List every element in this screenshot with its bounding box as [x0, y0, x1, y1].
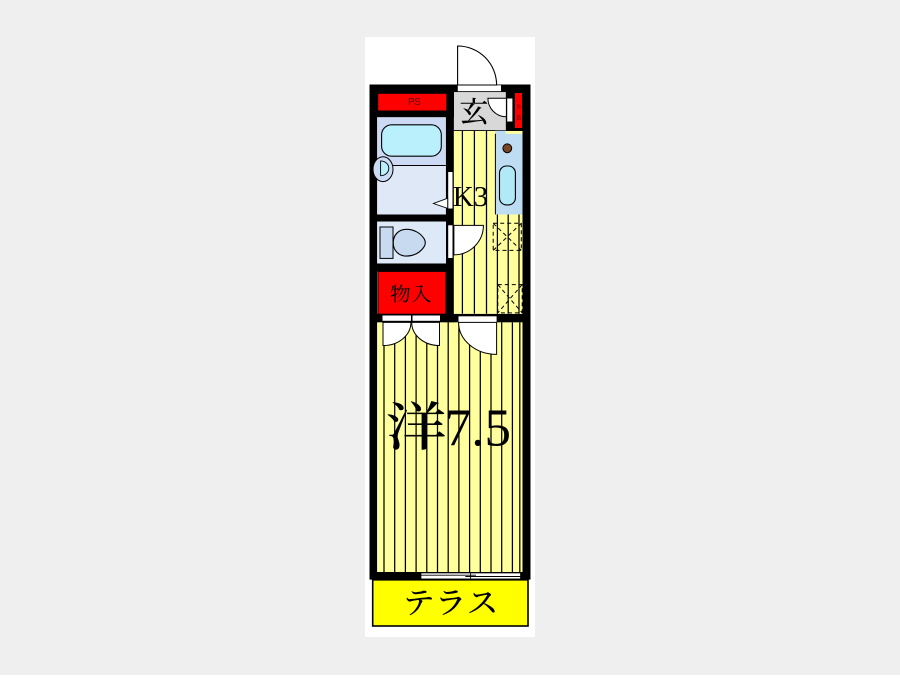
svg-text:PS: PS — [408, 97, 421, 108]
svg-text:7.5: 7.5 — [445, 400, 511, 458]
svg-text:K3: K3 — [453, 181, 488, 213]
